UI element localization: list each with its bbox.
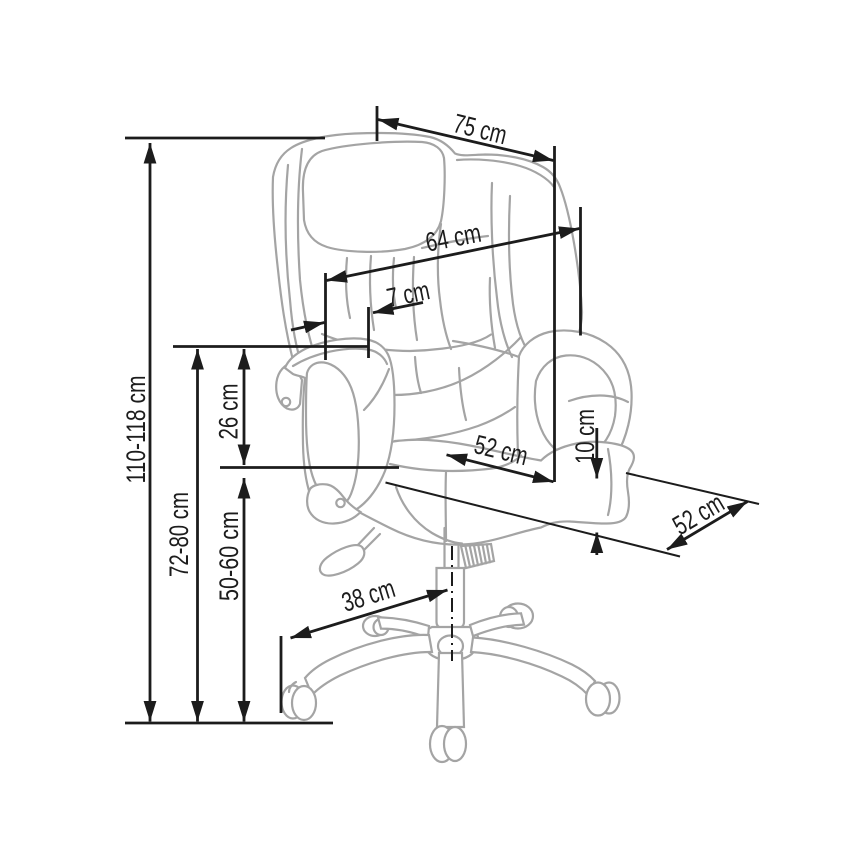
- svg-text:72-80 cm: 72-80 cm: [164, 492, 194, 577]
- svg-text:10 cm: 10 cm: [570, 409, 600, 464]
- svg-text:26 cm: 26 cm: [214, 384, 244, 440]
- svg-text:50-60 cm: 50-60 cm: [214, 511, 244, 601]
- svg-text:110-118 cm: 110-118 cm: [121, 376, 151, 484]
